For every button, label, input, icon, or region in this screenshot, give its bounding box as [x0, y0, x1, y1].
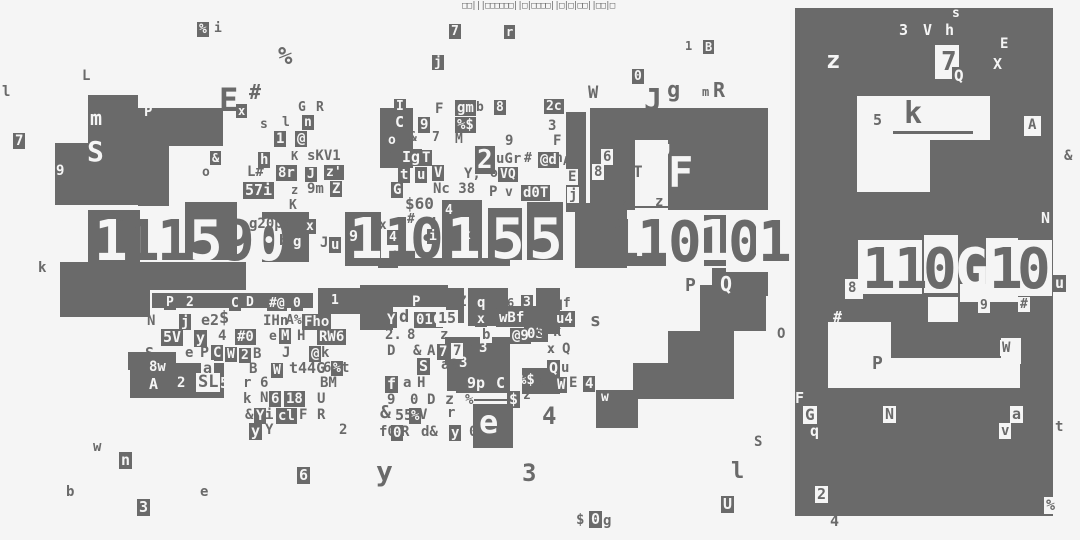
glyph: &: [210, 151, 221, 165]
glyph: A: [147, 376, 160, 393]
glyph: i: [214, 22, 222, 35]
glyph: B: [703, 40, 714, 54]
glyph: 1: [274, 131, 286, 147]
glyph: k: [38, 261, 46, 275]
glyph: Y: [265, 423, 273, 437]
glyph: ..: [391, 243, 407, 256]
glyph: 7: [432, 131, 440, 144]
glyph: P: [164, 295, 176, 310]
glyph: 3: [479, 341, 487, 355]
glyph: &: [380, 404, 391, 422]
glyph: T: [633, 164, 643, 180]
glyph: z: [523, 389, 531, 402]
glyph: c: [119, 212, 127, 226]
glyph: P: [872, 355, 883, 373]
glyph: 5V: [161, 329, 183, 346]
gray-block: [632, 206, 704, 208]
glyph: P: [489, 185, 497, 199]
glyph: #: [249, 82, 261, 102]
glyph: A: [427, 344, 435, 358]
glyph: aS: [441, 358, 458, 372]
glyph: J: [644, 86, 662, 116]
glyph: S: [754, 435, 762, 449]
glyph: U: [317, 392, 325, 406]
glyph: L: [82, 69, 90, 83]
glyph: y: [249, 423, 262, 440]
glyph: l: [731, 461, 744, 483]
glyph: F: [299, 408, 307, 422]
glyph: t: [1055, 420, 1063, 434]
glyph: N: [1041, 211, 1050, 226]
glyph: %: [1044, 497, 1057, 514]
gray-block: [318, 288, 364, 314]
glyph: f: [385, 376, 398, 393]
glyph: 4: [542, 404, 556, 428]
glyph: r: [243, 376, 251, 390]
glyph: x: [236, 104, 247, 118]
big-digit-cluster-3: 1: [756, 214, 794, 272]
glyph: 6: [297, 467, 310, 484]
glyph: g20p@: [249, 217, 291, 231]
glyph: 7: [463, 200, 471, 214]
glyph: t44G: [289, 361, 325, 376]
glyph: #: [833, 310, 842, 325]
glyph: 7: [449, 24, 461, 39]
glyph: Nc 38: [433, 182, 475, 196]
glyph: 3: [899, 23, 908, 38]
glyph: 3: [537, 327, 545, 340]
glyph: cl: [276, 408, 297, 424]
glyph: 9p: [467, 376, 485, 391]
glyph: 6: [269, 391, 281, 407]
glyph: F: [435, 102, 443, 116]
glyph: 3: [137, 499, 150, 516]
glyph: D: [246, 296, 254, 309]
glyph: 6: [601, 149, 613, 165]
glyph: R: [713, 80, 725, 100]
glyph: 4: [445, 204, 453, 217]
glyph: x: [475, 312, 487, 327]
glyph: g: [603, 514, 611, 528]
glyph: u: [329, 237, 341, 253]
glyph: L#: [247, 165, 264, 179]
glyph: F: [553, 134, 561, 148]
glyph: X: [993, 57, 1002, 72]
glyph: t: [398, 167, 410, 183]
glyph: e2: [199, 312, 221, 329]
glyph: a: [403, 376, 411, 390]
glyph: Ig: [400, 149, 422, 166]
glyph: x: [304, 219, 316, 234]
glyph: R: [317, 408, 325, 422]
glyph: 8: [592, 164, 604, 180]
glyph: $: [576, 513, 584, 527]
glyph: #: [524, 152, 532, 165]
glyph: B: [249, 362, 257, 376]
binary-top-row: □□|||□□□□□□||□|□□□□||□|□|□□||□□|□: [462, 2, 614, 11]
glyph: G: [298, 101, 306, 114]
glyph: b: [66, 485, 74, 499]
light-cutout: [857, 140, 930, 192]
glyph: n: [555, 152, 563, 165]
glyph: F: [668, 152, 693, 194]
glyph: %$: [455, 117, 476, 133]
glyph: r: [504, 25, 515, 39]
glyph: %: [465, 393, 473, 407]
glyph: W: [271, 363, 283, 378]
glyph: H: [297, 329, 305, 343]
glyph: G: [391, 182, 403, 198]
glyph: B: [253, 347, 261, 361]
glyph: l: [2, 85, 10, 99]
glyph: u: [561, 361, 569, 375]
glyph: o: [490, 167, 498, 180]
glyph: e: [269, 330, 277, 343]
glyph: m: [90, 108, 102, 128]
glyph: uGr: [496, 152, 521, 166]
glyph: 0: [589, 511, 602, 528]
glyph: J: [282, 346, 290, 360]
glyph: RW6: [317, 329, 346, 345]
glyph: J: [305, 167, 317, 182]
glyph: F: [795, 391, 804, 406]
glyph: 5: [571, 132, 579, 146]
glyph: g: [291, 234, 303, 250]
glyph: x: [463, 229, 471, 242]
glyph: z: [655, 195, 663, 209]
glyph: %: [197, 22, 209, 37]
glyph: i: [427, 229, 439, 244]
glyph: S: [87, 138, 104, 166]
glyph: #: [1018, 297, 1030, 312]
glyph: K: [291, 150, 298, 162]
glyph: W: [1000, 340, 1012, 356]
glyph: 8: [846, 280, 858, 296]
glyph: $: [219, 310, 229, 327]
glyph: r: [447, 406, 455, 420]
glyph: 1: [685, 40, 692, 52]
glyph: R: [316, 101, 324, 114]
glyph: 7: [13, 133, 25, 149]
glyph: V: [923, 23, 932, 38]
glyph: &: [413, 344, 421, 358]
glyph: J: [320, 236, 328, 250]
glyph: 5: [220, 376, 229, 391]
glyph: z: [620, 196, 627, 208]
glyph: z: [440, 328, 448, 342]
glyph: j: [432, 55, 444, 70]
glyph: n: [302, 115, 314, 130]
glyph: u: [415, 167, 427, 183]
glyph: i: [265, 408, 273, 422]
glyph: 3: [548, 119, 556, 133]
glyph: g: [667, 80, 680, 102]
glyph: 1: [331, 294, 339, 307]
glyph: d0T: [521, 185, 550, 201]
glyph: C: [395, 115, 404, 130]
glyph: 3: [459, 356, 467, 370]
glyph: 9: [56, 164, 64, 178]
glyph: 0: [291, 296, 303, 311]
glyph: C: [211, 345, 223, 361]
gray-block: [668, 331, 734, 399]
glyph: Fho: [302, 314, 331, 330]
glyph: w: [93, 440, 101, 454]
glyph: H: [417, 376, 425, 390]
glyph: k: [553, 325, 561, 339]
glyph: v: [999, 423, 1011, 439]
glyph: 4: [830, 514, 839, 529]
glyph: IHn: [263, 314, 288, 328]
glyph: Y: [385, 312, 397, 328]
glyph: 3: [522, 461, 536, 485]
gray-block: [700, 285, 766, 331]
glyph: Y,: [464, 167, 481, 181]
glyph: b: [279, 234, 287, 248]
glyph: e: [185, 346, 193, 360]
big-digit-cluster-1: 1: [126, 214, 160, 270]
glyph: 2: [186, 296, 194, 309]
glyph: 8: [494, 100, 506, 115]
glyph: R: [401, 425, 409, 439]
glyph: 0: [469, 425, 477, 439]
glyph: E: [566, 169, 578, 185]
glyph: 0: [410, 393, 418, 407]
glyph: s: [260, 118, 268, 131]
glyph: VQ: [498, 167, 518, 182]
glyph: U: [721, 496, 734, 513]
glyph: Q: [720, 274, 732, 294]
glyph: 2c: [544, 99, 564, 114]
glyph: Z: [330, 181, 342, 197]
glyph: gm: [455, 100, 476, 116]
glyph: &: [245, 408, 253, 422]
glyph: -x: [371, 219, 387, 232]
glyph: 4: [218, 329, 226, 343]
glyph: a: [1010, 406, 1023, 423]
glyph: 4: [583, 376, 595, 392]
glyph: 15: [436, 310, 458, 327]
glyph: k: [321, 346, 329, 360]
glyph: d: [397, 308, 411, 327]
glyph: 5: [873, 113, 882, 128]
glyph: q: [475, 295, 487, 311]
glyph: #: [407, 213, 415, 226]
glyph: 9m: [307, 182, 324, 196]
glyph: y: [376, 458, 393, 486]
glyph: %: [278, 44, 292, 68]
glyph: &: [409, 131, 417, 144]
glyph: 6: [260, 376, 268, 390]
glyph: W: [225, 347, 237, 362]
glyph: O: [777, 327, 785, 341]
glyph: BM: [320, 376, 337, 390]
glyph: z: [826, 48, 840, 72]
big-digit-cluster-2: 5: [529, 212, 563, 268]
glyph: P: [412, 295, 420, 309]
glyph: z: [291, 184, 298, 196]
glyph: D: [387, 344, 395, 358]
glyph: C: [229, 296, 241, 311]
glyph: E: [1000, 37, 1008, 51]
glyph: s: [952, 7, 960, 20]
glyph: q: [810, 424, 819, 439]
big-digit-cluster-4: 1: [862, 242, 896, 298]
glyph: W: [555, 377, 567, 393]
glyph: SL: [196, 373, 220, 392]
glyph: e: [200, 485, 208, 499]
glyph: N: [883, 406, 896, 423]
glyph: 0: [632, 69, 644, 84]
glyph: 2.: [385, 328, 402, 342]
big-digit-cluster-1: 1: [157, 214, 191, 270]
glyph: V: [432, 165, 444, 181]
glyph: Q: [547, 360, 560, 377]
glyph: A: [1026, 117, 1038, 133]
glyph: 3: [521, 295, 533, 310]
glyph: M: [455, 133, 463, 146]
glitch-art-canvas: □□|||□□□□□□||□|□□□□||□|□|□□||□□|□ 111590…: [0, 0, 1080, 540]
gray-block: [633, 363, 669, 399]
glyph: W: [588, 85, 598, 102]
glyph: 9: [505, 134, 513, 148]
glyph: t: [341, 361, 349, 375]
glyph: h: [945, 23, 954, 38]
glyph: 18: [284, 391, 305, 407]
glyph: u: [1053, 275, 1066, 292]
glyph: P: [144, 105, 152, 119]
glyph: qf: [555, 297, 571, 310]
glyph: M: [279, 328, 291, 344]
glyph: A%: [286, 314, 302, 327]
glyph: P: [685, 277, 696, 295]
big-digit-cluster-3: 1: [606, 214, 640, 270]
glyph: Z: [458, 295, 466, 309]
glyph: Q: [952, 67, 966, 85]
gray-block: [122, 108, 223, 146]
big-digit-cluster-2: 5: [491, 212, 525, 268]
glyph: 4: [429, 217, 437, 230]
glyph: 57i: [243, 182, 274, 199]
big-digit-cluster-1: 5: [189, 214, 223, 270]
glyph: #0: [235, 329, 256, 345]
glyph: D: [427, 393, 435, 407]
glyph: 2: [339, 423, 347, 437]
gray-block: [893, 131, 973, 134]
glyph: E: [569, 376, 577, 390]
big-digit-cluster-4: 0: [1017, 242, 1051, 298]
glyph: N: [260, 391, 268, 405]
glyph: %$: [518, 373, 535, 387]
glyph: I: [394, 99, 406, 114]
glyph: K: [289, 199, 297, 212]
glyph: w: [599, 390, 611, 405]
glyph: y: [449, 425, 461, 441]
glyph: S: [417, 358, 430, 375]
glyph: z': [324, 165, 344, 180]
glyph: l: [282, 116, 290, 129]
gray-block: [590, 108, 768, 140]
glyph: k: [904, 99, 922, 129]
glyph: 2: [177, 376, 185, 390]
glyph: x: [547, 343, 555, 356]
glyph: C: [496, 376, 505, 391]
glyph: @: [295, 131, 307, 147]
glyph: #@: [267, 296, 287, 311]
glyph: k: [243, 392, 251, 406]
glyph: P: [200, 345, 209, 360]
glyph: wBf: [499, 311, 524, 325]
glyph: m: [702, 86, 709, 98]
glyph: A: [563, 155, 570, 167]
glyph: &: [1064, 149, 1072, 163]
glyph: s: [590, 312, 601, 330]
glyph: Q: [562, 342, 570, 356]
glyph: 8w: [149, 360, 166, 374]
glyph: 2: [815, 486, 828, 503]
glyph: 6: [507, 297, 514, 309]
glyph: d&: [421, 425, 438, 439]
gray-block: [138, 146, 169, 206]
glyph: 8r: [276, 165, 297, 181]
glyph: e: [479, 406, 498, 438]
glyph: 2: [386, 150, 394, 164]
glyph: 9: [418, 117, 430, 133]
glyph: 8: [407, 328, 415, 342]
glyph: sKV1: [307, 149, 341, 163]
glyph: $: [507, 391, 520, 408]
glyph: v: [505, 186, 513, 199]
glyph: j: [492, 295, 500, 309]
glyph: $60: [405, 196, 434, 212]
big-digit-cluster-4: 0: [923, 242, 957, 298]
glyph: 9: [978, 298, 990, 313]
glyph: o: [386, 133, 398, 148]
glyph: b: [476, 101, 484, 114]
glyph: N: [147, 314, 155, 328]
gray-block: [393, 285, 448, 307]
glyph: $: [537, 377, 545, 391]
big-digit-cluster-4: G: [955, 242, 989, 298]
glyph: j: [567, 187, 579, 203]
glyph: T: [420, 150, 432, 166]
glyph: 9: [349, 229, 358, 244]
glyph: o: [202, 166, 210, 179]
glyph: n: [119, 452, 132, 469]
glyph: V: [419, 408, 427, 422]
